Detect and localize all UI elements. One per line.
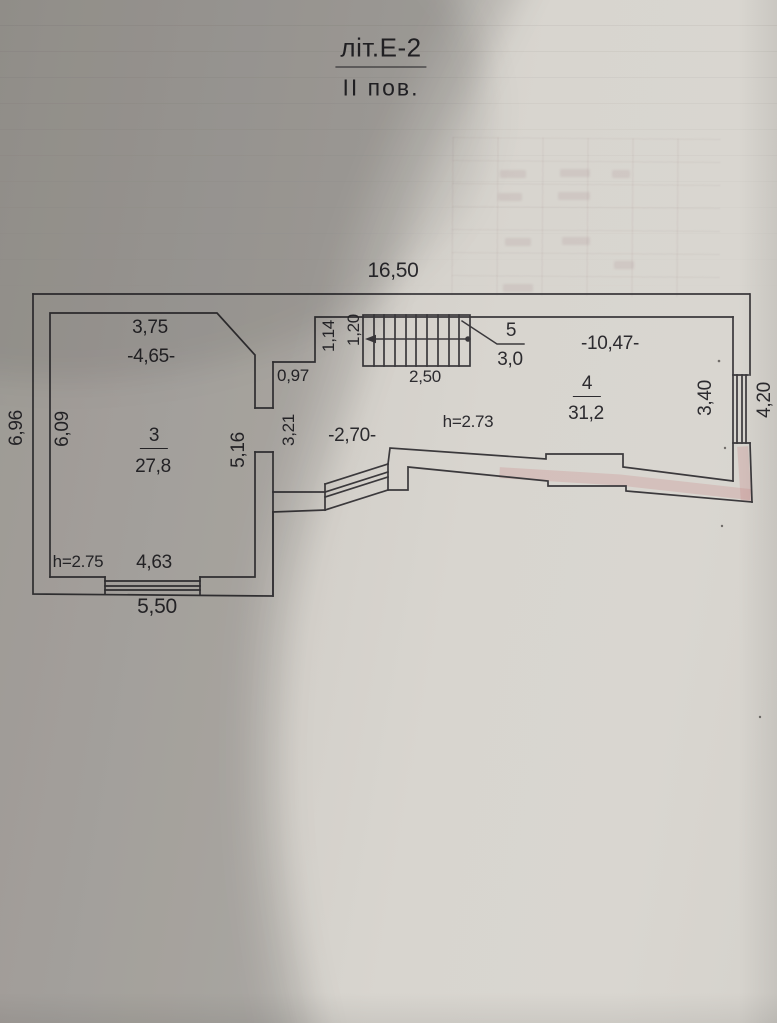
scanned-floor-plan-page: літ.Е-2 ІІ пов. 16,50 3,75 -4,65- 6,96 6… [0,0,777,1023]
room4-area: 31,2 [568,403,604,425]
dim-room3-mid: -4,65- [127,346,175,368]
dim-room4-width: -10,47- [581,333,639,355]
dim-room3-right: 5,16 [228,432,250,468]
dim-room3-left-inner: 6,09 [52,411,74,447]
dim-room3-left-outer: 6,96 [6,410,28,446]
room3-number: 3 [140,425,168,449]
dim-hall-width: -2,70- [328,425,376,447]
dim-landing-width: 1,14 [319,320,339,352]
hall-window [325,464,388,510]
stairs-number: 5 [506,320,516,342]
dim-room3-bottom-inner: 4,63 [136,552,172,574]
dim-room4-right-outer: 4,20 [754,382,776,418]
room4-number: 4 [573,373,601,397]
drawing-subtitle: ІІ пов. [342,75,419,102]
room3-area: 27,8 [135,456,171,478]
room4-ceiling-height: h=2.73 [443,412,494,432]
dim-stair-flight-width: 1,20 [344,314,364,346]
dim-hall-depth: 3,21 [279,414,299,446]
dim-room4-right-inner: 3,40 [695,380,717,416]
drawing-title: літ.Е-2 [335,33,426,68]
dim-overall-width: 16,50 [367,259,418,283]
room3-window [105,577,200,594]
dim-room3-bottom-outer: 5,50 [137,595,177,619]
room4-window [733,375,750,443]
stairs-area: 3,0 [497,349,523,371]
room3-ceiling-height: h=2.75 [53,552,104,572]
dim-hall-nook: 0,97 [277,366,309,386]
dim-room3-top: 3,75 [132,317,168,339]
floor-plan-drawing [0,0,777,1023]
dim-stairs-run: 2,50 [409,367,441,387]
